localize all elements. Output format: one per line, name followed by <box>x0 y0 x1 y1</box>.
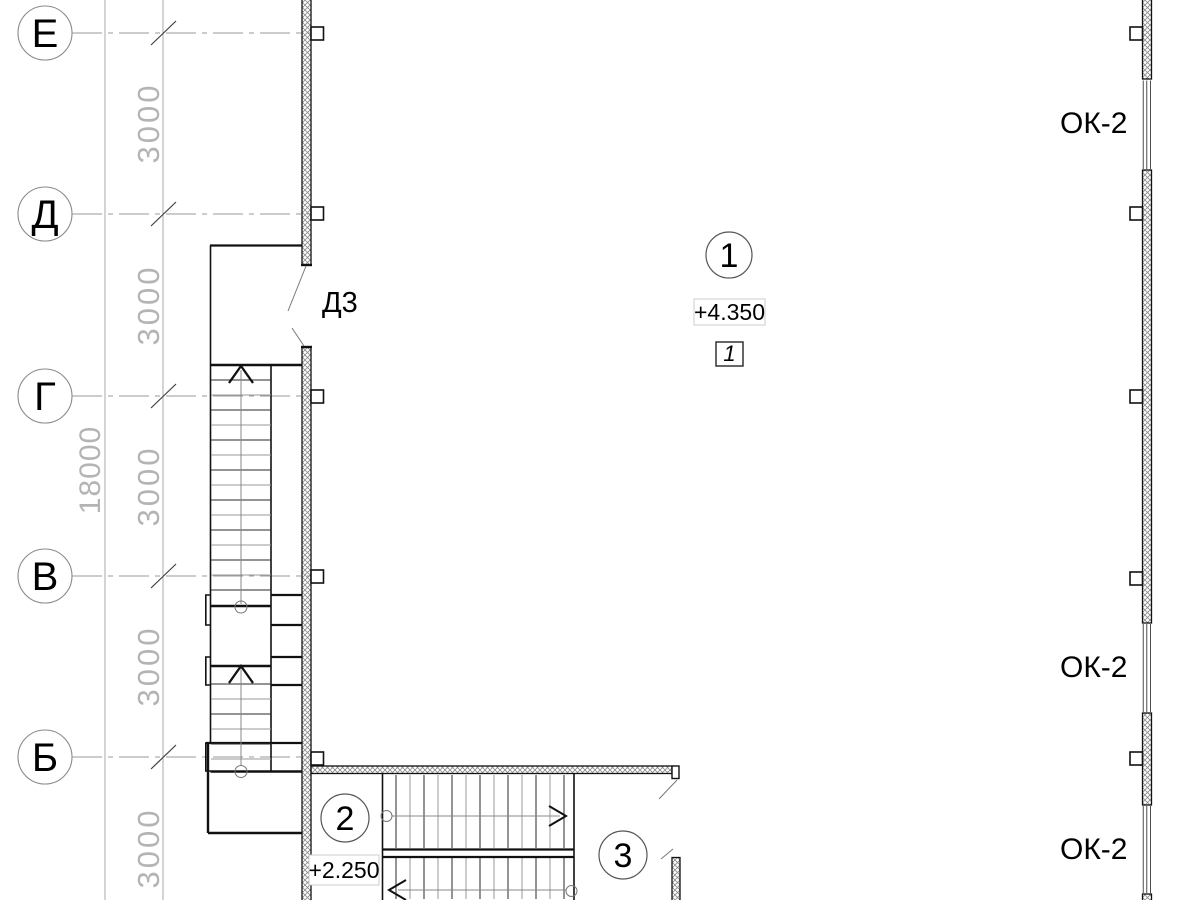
grid-axis-bubbles: Е Д Г В Б <box>18 6 72 784</box>
door-d3-leaf-line-1 <box>288 266 306 311</box>
window-ok2-1 <box>1143 81 1150 170</box>
detail-ref-value: 1 <box>723 341 735 366</box>
marker-node-3: 3 <box>599 831 647 879</box>
marker-1-number: 1 <box>720 237 739 275</box>
elevation-value-1: +4.350 <box>694 299 765 325</box>
wall-tie-squares <box>311 27 1143 765</box>
window-label-3: ОК-2 <box>1060 833 1128 866</box>
wall-left-lower <box>302 347 311 900</box>
wall-right-pier-3 <box>1143 713 1152 805</box>
dim-3000-2: 3000 <box>131 265 166 346</box>
stair-enclosure <box>206 246 302 834</box>
staircase-upper <box>211 366 271 778</box>
axis-label-g: Г <box>34 375 56 419</box>
wall-bottom-horizontal <box>311 766 672 774</box>
window-ok2-2 <box>1143 624 1150 712</box>
dim-3000-5: 3000 <box>131 808 166 889</box>
marker-node-2: 2 +2.250 <box>309 794 380 885</box>
axis-label-b: Б <box>32 736 58 780</box>
floor-plan-canvas: 3000 3000 3000 3000 3000 18000 Е Д Г В Б <box>0 0 1200 900</box>
wall-left-upper <box>302 0 311 265</box>
axis-label-d: Д <box>31 193 58 237</box>
wall-right-pier-4 <box>1143 894 1152 900</box>
door-d3-leaf-line-2 <box>292 328 304 346</box>
wall-bottom-right <box>672 858 680 900</box>
dim-3000-3: 3000 <box>131 446 166 527</box>
door-d3: Д3 <box>288 266 358 346</box>
handrail-post-4 <box>566 886 577 897</box>
window-labels: ОК-2 ОК-2 ОК-2 <box>1060 107 1128 866</box>
floor-plan-drawing: 3000 3000 3000 3000 3000 18000 Е Д Г В Б <box>0 0 1200 900</box>
elevation-value-2: +2.250 <box>309 857 380 883</box>
wall-bottom-end-return <box>672 766 679 779</box>
dim-3000-4: 3000 <box>131 626 166 707</box>
marker-node-1: 1 +4.350 1 <box>694 232 765 366</box>
marker-3-number: 3 <box>614 837 633 875</box>
axis-label-e: Е <box>32 12 59 56</box>
grid-axis-lines <box>72 33 311 757</box>
door-d3-label: Д3 <box>322 287 358 319</box>
walls <box>301 0 1152 900</box>
lower-stair-treads-flight-2 <box>396 858 564 899</box>
window-label-1: ОК-2 <box>1060 107 1128 140</box>
window-ok2-3 <box>1143 806 1150 893</box>
lower-stair-treads-flight-1 <box>396 775 564 848</box>
wall-right-pier-1 <box>1143 0 1152 79</box>
axis-label-v: В <box>32 555 59 599</box>
door-lower-right <box>659 780 677 859</box>
window-label-2: ОК-2 <box>1060 651 1128 684</box>
dim-3000-1: 3000 <box>131 83 166 164</box>
staircase-lower <box>381 774 577 900</box>
dim-18000: 18000 <box>74 426 107 514</box>
wall-right-pier-2 <box>1143 170 1152 623</box>
marker-2-number: 2 <box>336 800 355 838</box>
